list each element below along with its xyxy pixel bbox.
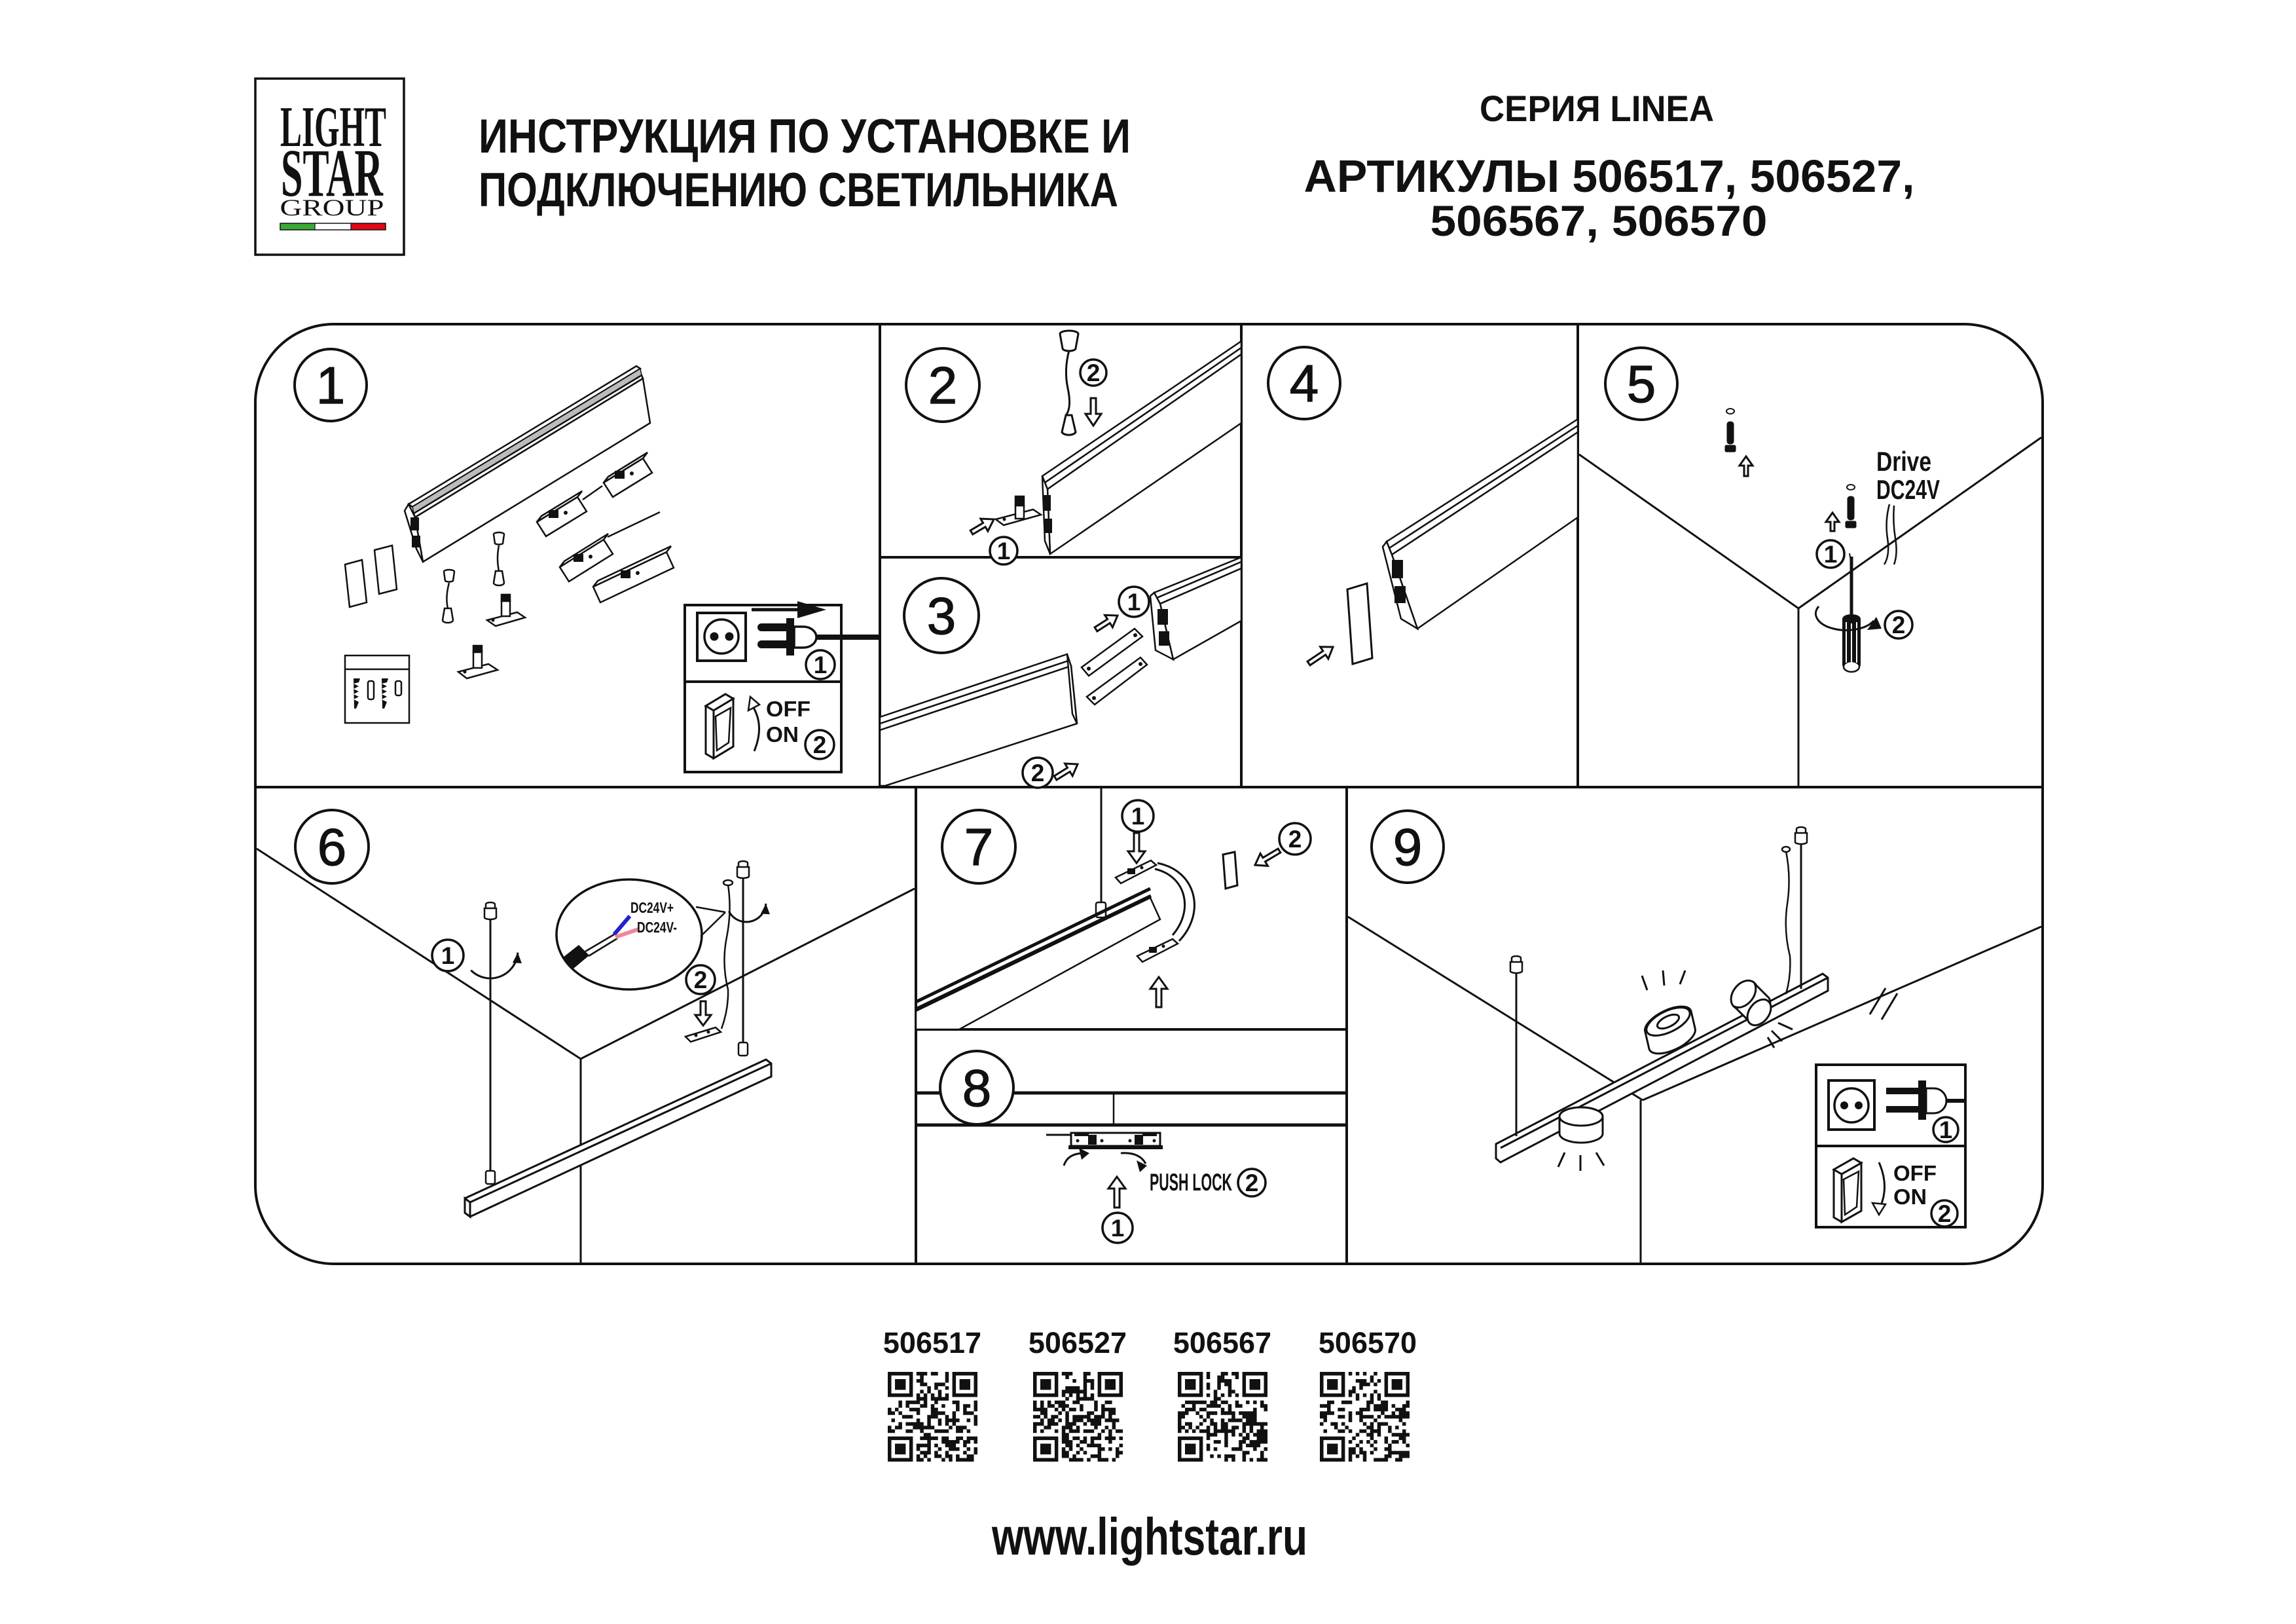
svg-text:2: 2 bbox=[1031, 760, 1045, 786]
svg-text:1: 1 bbox=[1127, 589, 1141, 616]
svg-text:DC24V: DC24V bbox=[1876, 474, 1940, 505]
svg-text:9: 9 bbox=[1393, 818, 1423, 876]
svg-text:ПОДКЛЮЧЕНИЮ СВЕТИЛЬНИКА: ПОДКЛЮЧЕНИЮ СВЕТИЛЬНИКА bbox=[479, 164, 1118, 217]
svg-text:6: 6 bbox=[318, 818, 347, 876]
svg-text:506567: 506567 bbox=[1173, 1326, 1271, 1359]
svg-text:2: 2 bbox=[1245, 1170, 1259, 1196]
svg-text:СЕРИЯ LINEA: СЕРИЯ LINEA bbox=[1480, 88, 1714, 129]
svg-text:7: 7 bbox=[964, 818, 994, 876]
svg-text:2: 2 bbox=[813, 731, 827, 758]
svg-text:OFF: OFF bbox=[766, 697, 811, 721]
svg-text:АРТИКУЛЫ 506517, 506527,: АРТИКУЛЫ 506517, 506527, bbox=[1304, 151, 1915, 202]
svg-text:www.lightstar.ru: www.lightstar.ru bbox=[991, 1507, 1307, 1566]
svg-text:3: 3 bbox=[927, 587, 957, 645]
svg-text:ИНСТРУКЦИЯ ПО УСТАНОВКЕ И: ИНСТРУКЦИЯ ПО УСТАНОВКЕ И bbox=[479, 110, 1131, 163]
svg-text:PUSH LOCK: PUSH LOCK bbox=[1150, 1169, 1232, 1196]
svg-text:1: 1 bbox=[1939, 1116, 1953, 1143]
svg-text:1: 1 bbox=[1824, 541, 1838, 568]
svg-text:5: 5 bbox=[1627, 355, 1656, 413]
svg-text:1: 1 bbox=[441, 942, 455, 969]
svg-text:ON: ON bbox=[1893, 1185, 1927, 1209]
svg-text:2: 2 bbox=[694, 967, 708, 993]
svg-text:1: 1 bbox=[316, 356, 346, 415]
svg-text:2: 2 bbox=[1087, 360, 1101, 386]
svg-text:2: 2 bbox=[1288, 826, 1302, 853]
svg-text:2: 2 bbox=[1892, 612, 1906, 638]
svg-text:2: 2 bbox=[928, 356, 958, 415]
svg-text:506517: 506517 bbox=[883, 1326, 981, 1359]
svg-text:8: 8 bbox=[962, 1059, 992, 1117]
svg-text:DC24V-: DC24V- bbox=[637, 919, 677, 936]
svg-text:1: 1 bbox=[1131, 803, 1145, 830]
svg-text:DC24V+: DC24V+ bbox=[630, 899, 674, 916]
svg-text:506527: 506527 bbox=[1029, 1326, 1127, 1359]
svg-text:1: 1 bbox=[997, 538, 1011, 564]
svg-text:ON: ON bbox=[766, 722, 799, 747]
svg-text:1: 1 bbox=[1111, 1215, 1125, 1242]
svg-text:506570: 506570 bbox=[1319, 1326, 1417, 1359]
svg-text:Drive: Drive bbox=[1876, 446, 1931, 477]
svg-text:4: 4 bbox=[1290, 354, 1319, 413]
svg-text:OFF: OFF bbox=[1893, 1161, 1937, 1185]
svg-text:506567, 506570: 506567, 506570 bbox=[1430, 196, 1768, 245]
svg-text:2: 2 bbox=[1938, 1200, 1952, 1227]
svg-text:GROUP: GROUP bbox=[280, 194, 384, 221]
svg-text:1: 1 bbox=[814, 652, 828, 678]
